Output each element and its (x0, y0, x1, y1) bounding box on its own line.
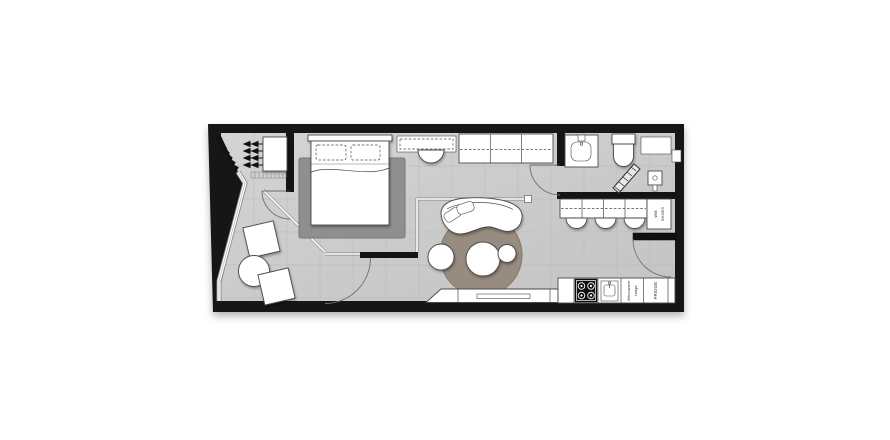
square-pouf (258, 268, 295, 305)
wm-label-line2: SHOES (661, 207, 665, 222)
console-tray (477, 294, 530, 299)
bedroom (299, 135, 405, 238)
bathroom-shelf (641, 137, 671, 154)
floorplan-canvas: WM SHOES (0, 0, 890, 440)
bathroom-wall (557, 133, 565, 166)
wm-shoes-cabinet: WM SHOES (647, 199, 671, 229)
bed-mattress (311, 141, 389, 225)
microwave-label-line1: Microwave (627, 281, 631, 301)
closet-cabinet (263, 137, 287, 171)
wardrobe (459, 134, 553, 163)
double-bed (308, 135, 392, 225)
pouf-round (428, 244, 454, 270)
partition-end-post (525, 196, 532, 203)
vanity-sink (565, 135, 598, 167)
bedroom-door-track (360, 252, 418, 258)
microwave-label-line2: range (634, 285, 638, 296)
wm-label-line1: WM (654, 210, 658, 217)
kitchen-sink (601, 281, 618, 301)
fridge: FRIDGE (653, 282, 658, 300)
kitchen: Microwave range FRIDGE (558, 278, 675, 303)
bar-wall (557, 192, 675, 199)
tv-console (426, 289, 558, 303)
square-pouf (243, 221, 280, 258)
toilet (612, 134, 635, 167)
side-table (498, 245, 516, 263)
cooktop (575, 279, 597, 302)
curved-sofa (441, 198, 522, 234)
fridge-label: FRIDGE (653, 282, 658, 300)
entry-door-leaf (633, 233, 676, 240)
wall-niche (672, 150, 681, 162)
coffee-table (466, 242, 500, 276)
studio-apartment-floorplan: WM SHOES (0, 0, 890, 440)
bed-headboard (308, 135, 392, 141)
